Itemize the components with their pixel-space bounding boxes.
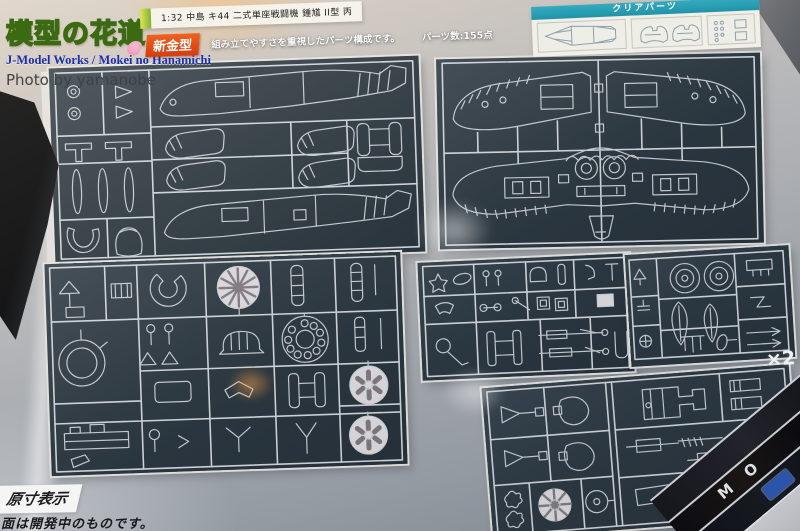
actual-size-label-box: 原寸表示 [0, 484, 82, 513]
new-mold-badge: 新金型 [145, 33, 200, 57]
actual-size-label: 原寸表示 [5, 487, 70, 509]
kit-tagline: 組み立てやすさを重視したパーツ構成です。 [211, 30, 400, 51]
parts-count: パーツ数:155点 [422, 27, 493, 43]
clear-small-parts-grid [707, 13, 756, 45]
site-logo-text: 模型の花道 [6, 19, 146, 50]
photo-stage: M O 模型の花道TM J-Model Works / Mokei no Han… [0, 0, 800, 531]
kit-title-strip: 1:32 中島 キ44 二式単座戦闘機 鍾馗 II型 丙 [140, 1, 363, 29]
development-note: 面は開発中のものです。 [1, 513, 154, 531]
kit-title: 1:32 中島 キ44 二式単座戦闘機 鍾馗 II型 丙 [151, 1, 363, 28]
sprue-panel-wings [436, 53, 764, 250]
sprue-multiplier-label: ×2 [765, 347, 796, 371]
wings-sprue-drawing [436, 53, 764, 250]
clear-parts-inset: クリアパーツ [531, 0, 761, 57]
sprue-panel-small-fittings [417, 253, 634, 380]
title-strip-cap [140, 9, 152, 29]
clear-canopy-side-view [537, 19, 627, 53]
photo-credit: Photo by yamanobe [6, 71, 211, 89]
small-fittings-drawing [417, 253, 634, 380]
engine-sprue-drawing [44, 252, 407, 476]
sprue-panel-engine-cockpit [44, 252, 407, 476]
clear-windscreen-views [630, 16, 703, 49]
